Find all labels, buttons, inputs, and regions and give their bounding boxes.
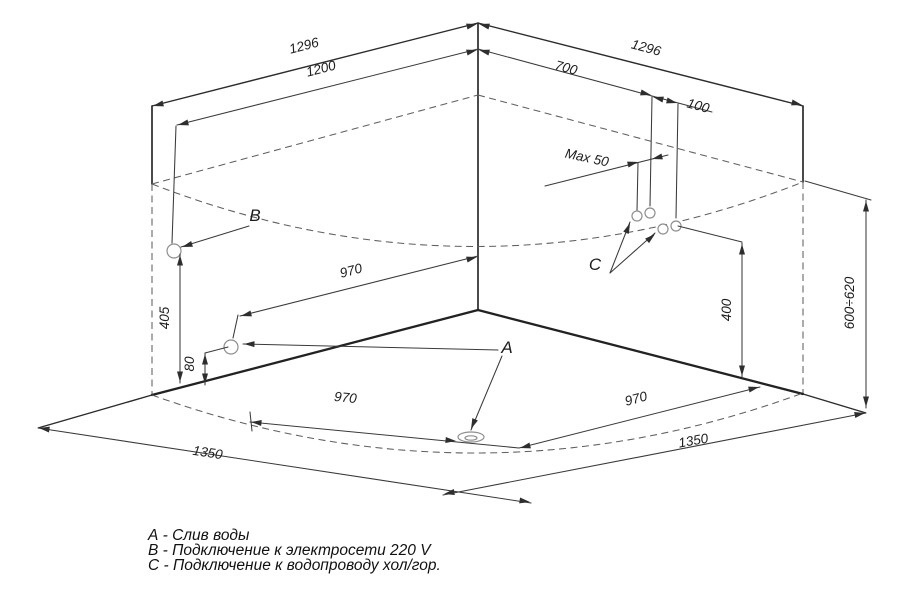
dim-text-700: 700 [553,57,579,77]
arrowhead [478,47,490,55]
arrowhead [863,397,869,408]
bathtub-installation-drawing: 1296 1200 1296 700 100 Max 50 970 970 97… [0,0,900,600]
arrowhead [651,154,663,162]
arrowhead [181,241,193,250]
arrowhead [152,101,164,109]
dim-text-1350-right: 1350 [677,430,710,450]
arrowhead [519,443,531,451]
ext-line-max50 [637,163,638,210]
arrowhead [739,366,745,377]
ext-line-100 [676,104,678,218]
arrowhead [177,372,183,383]
electric-connection-port [167,244,181,258]
dim-text-80: 80 [182,356,197,372]
isometric-drawing-canvas: 1296 1200 1296 700 100 Max 50 970 970 97… [0,0,900,600]
dim-connector-drain [457,442,519,448]
arrowhead [202,354,208,365]
dim-text-1296-right: 1296 [630,37,663,59]
arrowhead [466,47,478,55]
legend-item-water: С - Подключение к водопроводу хол/гор. [148,557,441,574]
arrowhead [666,98,678,106]
point-letters: A B C [249,206,602,357]
dim-text-405: 405 [157,306,172,329]
label-c-water: C [589,255,602,274]
leader-a-outlet [243,344,498,350]
dim-text-max50: Max 50 [564,146,611,170]
arrowhead [652,94,664,102]
arrowhead [244,341,255,347]
arrowhead [240,311,252,319]
dim-text-floor-970-left: 970 [333,389,357,406]
arrowhead [466,254,478,262]
dim-text-100: 100 [685,95,711,115]
arrowhead [478,21,490,29]
label-b-electric: B [249,206,260,225]
leader-a-drain [471,356,502,430]
dim-text-600-620: 600÷620 [842,276,857,329]
drain-hole-inner [465,436,477,440]
arrowhead [466,21,478,29]
dim-text-1296-left: 1296 [287,35,320,57]
ext-line-floor-970-left [250,412,252,431]
dimension-labels: 1296 1200 1296 700 100 Max 50 970 970 97… [157,35,857,463]
ext-line-mid-970 [233,315,238,338]
dim-line-1350-right [443,413,866,495]
arrowhead [739,244,745,255]
dim-text-1200: 1200 [304,58,337,80]
left-wall-base [152,310,478,395]
ext-line-400 [678,226,742,242]
dim-text-1350-left: 1350 [192,443,224,462]
dim-text-floor-970-right: 970 [623,388,649,408]
dim-line-floor-970-left [250,422,457,442]
ext-line-1200-to-b [172,126,176,243]
right-wall-base [478,310,803,394]
right-wall-top-edge [478,23,803,106]
floor-right-corner-edge [803,394,866,413]
ext-line-rim-height [805,181,871,200]
tub-rim-right-wall-line [478,95,803,182]
arrowhead [863,201,869,212]
arrowhead [519,497,530,505]
ext-line-700 [650,97,652,206]
floor-left-corner-edge [38,395,152,428]
dimension-lines [38,49,871,503]
arrowhead [748,384,760,392]
legend: А - Слив воды В - Подключение к электрос… [147,527,441,574]
label-a-drain: A [500,338,512,357]
arrowhead [640,90,652,98]
arrowhead [177,120,189,128]
water-port-3 [658,224,668,234]
arrowhead [445,437,456,444]
tub-rim-left-wall-line [152,95,478,184]
dim-text-mid-970: 970 [338,260,364,280]
water-port-1 [632,211,642,221]
arrowhead [791,99,803,107]
dim-text-400: 400 [719,298,734,321]
dimension-arrowheads [39,21,869,505]
water-port-2 [645,208,655,218]
arrowhead [468,418,478,430]
